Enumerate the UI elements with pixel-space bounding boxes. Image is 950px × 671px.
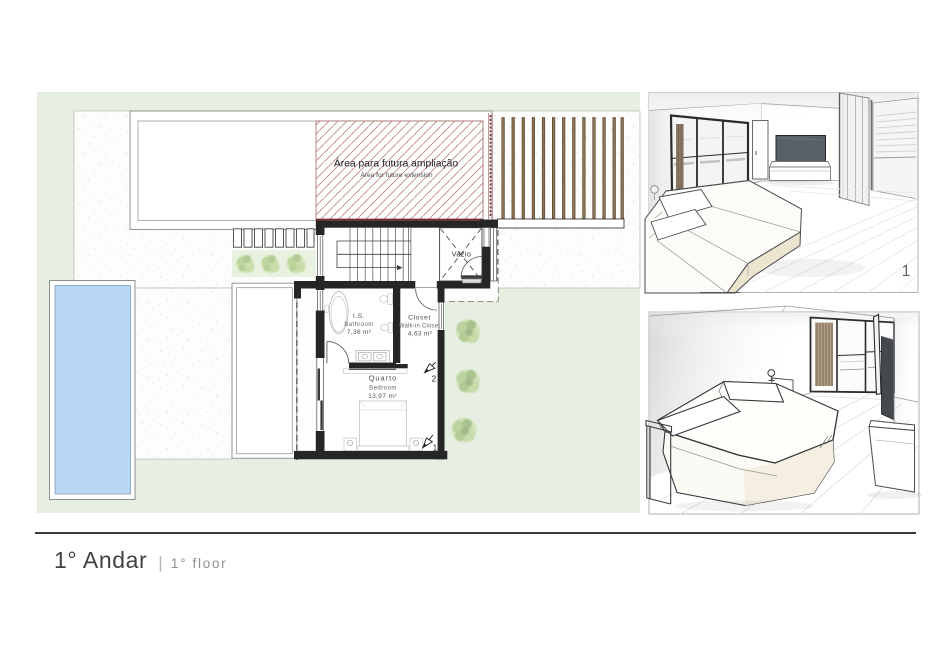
svg-text:1: 1 [433, 444, 438, 453]
svg-text:7,36 m²: 7,36 m² [347, 329, 372, 336]
svg-text:1: 1 [902, 263, 911, 280]
svg-text:I.S.: I.S. [353, 313, 365, 320]
svg-text:13,97 m²: 13,97 m² [368, 393, 397, 400]
svg-text:Área para futura ampliação: Área para futura ampliação [334, 157, 458, 170]
svg-text:Bedroom: Bedroom [369, 386, 397, 392]
svg-text:Closet: Closet [408, 315, 431, 322]
svg-text:4,63 m²: 4,63 m² [408, 331, 433, 338]
svg-text:2: 2 [432, 375, 437, 384]
svg-text:Bathroom: Bathroom [344, 322, 373, 328]
svg-text:Quarto: Quarto [369, 374, 398, 383]
svg-text:Vazio: Vazio [452, 250, 471, 259]
svg-text:Walk-in Closet: Walk-in Closet [399, 324, 440, 330]
svg-text:Área for future extension: Área for future extension [360, 170, 433, 179]
